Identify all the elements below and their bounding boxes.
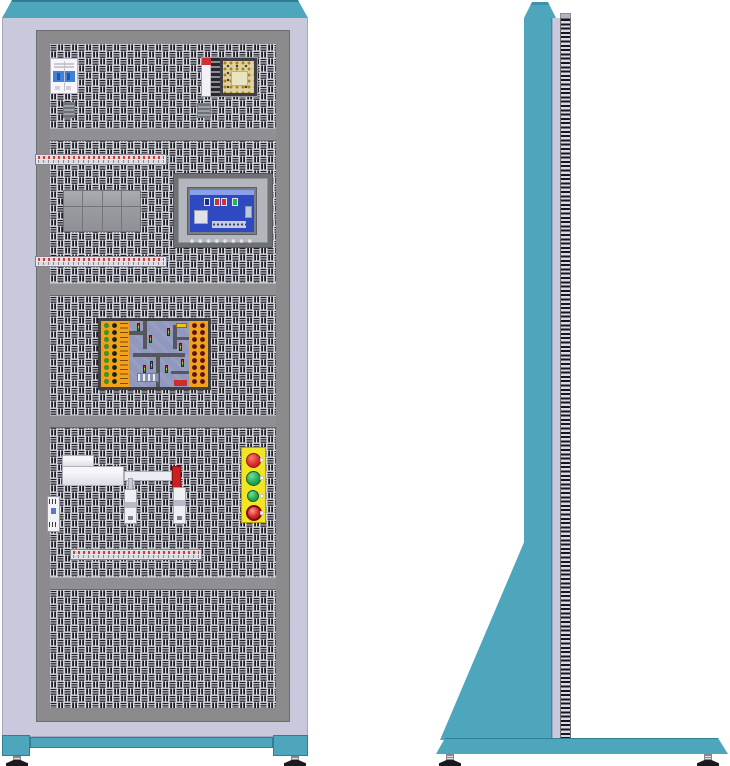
side-lavender-strip xyxy=(552,18,560,740)
plc-module xyxy=(103,191,121,206)
breaker-pole-divider xyxy=(64,61,65,91)
traffic-light xyxy=(137,323,140,331)
button-label-tag xyxy=(260,458,264,462)
plc-module-block xyxy=(63,190,141,232)
hmi-touch-panel xyxy=(173,173,273,248)
board-left-led-panel xyxy=(101,321,129,387)
led-column-red xyxy=(191,322,198,386)
leveling-foot-stud xyxy=(704,754,712,760)
terminal-strip-ticks xyxy=(38,262,164,265)
traffic-light xyxy=(167,328,170,336)
solenoid-valve xyxy=(173,487,186,524)
relay-module xyxy=(47,496,60,532)
cylinder-rod-tip xyxy=(172,466,181,488)
plc-module xyxy=(103,207,121,231)
leveling-foot xyxy=(6,760,28,766)
side-perforated-edge xyxy=(560,18,571,740)
psu-transformer xyxy=(231,71,248,86)
plc-module xyxy=(122,207,140,231)
traffic-light xyxy=(143,365,146,373)
power-supply-unit xyxy=(201,57,258,97)
board-street-map xyxy=(129,321,189,387)
solenoid-valve xyxy=(124,489,137,524)
led-label-column xyxy=(120,323,128,385)
hmi-screen-icon-red xyxy=(214,198,220,206)
hmi-screen-icon-blue xyxy=(204,198,210,206)
button-label-tag xyxy=(260,476,264,480)
relay-indicator xyxy=(51,508,56,514)
valve-band xyxy=(174,500,185,506)
hmi-screen-titlebar xyxy=(190,190,254,195)
plc-module xyxy=(64,191,82,206)
breaker-toggle xyxy=(57,73,60,80)
terminal-strip-ticks xyxy=(73,555,199,558)
led-column-red xyxy=(199,322,206,386)
road xyxy=(177,337,189,340)
traffic-light xyxy=(149,335,152,343)
traffic-light xyxy=(150,361,153,369)
led-column-green xyxy=(103,322,110,386)
board-red-tag xyxy=(174,380,187,386)
zebra-crossing xyxy=(137,373,159,382)
leveling-foot xyxy=(697,760,719,766)
panel-divider xyxy=(50,128,276,141)
terminal-strip xyxy=(70,549,202,560)
side-support-gusset xyxy=(440,540,525,740)
front-base-corner xyxy=(2,735,30,756)
terminal-strip-contacts xyxy=(38,258,164,261)
side-floor-base xyxy=(436,738,728,754)
hmi-screen-table xyxy=(194,210,208,224)
relay-terminals xyxy=(49,522,58,527)
hmi-screen xyxy=(190,190,254,232)
red-push-button xyxy=(246,453,261,468)
din-clip xyxy=(197,103,211,118)
hmi-function-keys xyxy=(189,238,255,244)
green-push-button xyxy=(247,490,259,502)
din-clip xyxy=(63,102,75,118)
pneumatic-cylinder-body xyxy=(62,466,124,486)
traffic-light xyxy=(181,359,184,367)
front-base-corner xyxy=(273,735,308,756)
panel-divider xyxy=(50,577,276,590)
valve-port xyxy=(128,516,133,520)
led-column-dark xyxy=(111,322,118,386)
breaker-terminal xyxy=(55,86,60,90)
hmi-screen-icon-green xyxy=(232,198,238,206)
button-label-tag xyxy=(260,511,264,515)
leveling-foot xyxy=(439,760,461,766)
equipment-illustration xyxy=(0,0,730,766)
traffic-light xyxy=(179,343,182,351)
push-button-station xyxy=(241,447,266,523)
hmi-screen-recess xyxy=(187,187,257,235)
psu-brand-mark xyxy=(202,58,211,65)
road xyxy=(129,331,143,335)
plc-module xyxy=(83,207,101,231)
side-top-cap xyxy=(524,2,556,18)
leveling-foot xyxy=(284,760,306,766)
terminal-strip xyxy=(35,256,167,267)
hmi-screen-icon-red xyxy=(221,198,227,206)
hmi-screen-keypad xyxy=(212,221,246,228)
front-base-bar xyxy=(30,737,273,748)
road xyxy=(171,371,189,374)
traffic-trainer-board xyxy=(98,318,211,390)
terminal-strip xyxy=(35,154,167,165)
breaker-toggle xyxy=(67,73,70,80)
plc-module xyxy=(122,191,140,206)
button-label-tag xyxy=(260,494,264,498)
hmi-screen-tank-icon xyxy=(245,206,252,218)
green-push-button xyxy=(246,471,261,486)
panel-divider xyxy=(50,283,276,296)
valve-port xyxy=(177,516,182,520)
psu-terminal-block xyxy=(211,58,220,96)
board-yellow-tag xyxy=(176,323,187,328)
panel-divider xyxy=(50,415,276,428)
plc-module xyxy=(83,191,101,206)
circuit-breaker xyxy=(50,58,78,94)
breaker-terminal xyxy=(66,86,71,90)
cabinet-top-cover xyxy=(2,0,308,18)
terminal-strip-contacts xyxy=(38,156,164,159)
terminal-strip-ticks xyxy=(38,160,164,163)
relay-terminals xyxy=(49,499,58,504)
traffic-light xyxy=(165,365,168,373)
plc-module xyxy=(64,207,82,231)
valve-band xyxy=(125,502,136,508)
board-right-led-panel xyxy=(189,321,208,387)
leveling-foot-stud xyxy=(446,754,454,760)
road xyxy=(143,321,147,349)
terminal-strip-contacts xyxy=(73,551,199,554)
road xyxy=(156,357,160,387)
side-column xyxy=(524,18,552,740)
